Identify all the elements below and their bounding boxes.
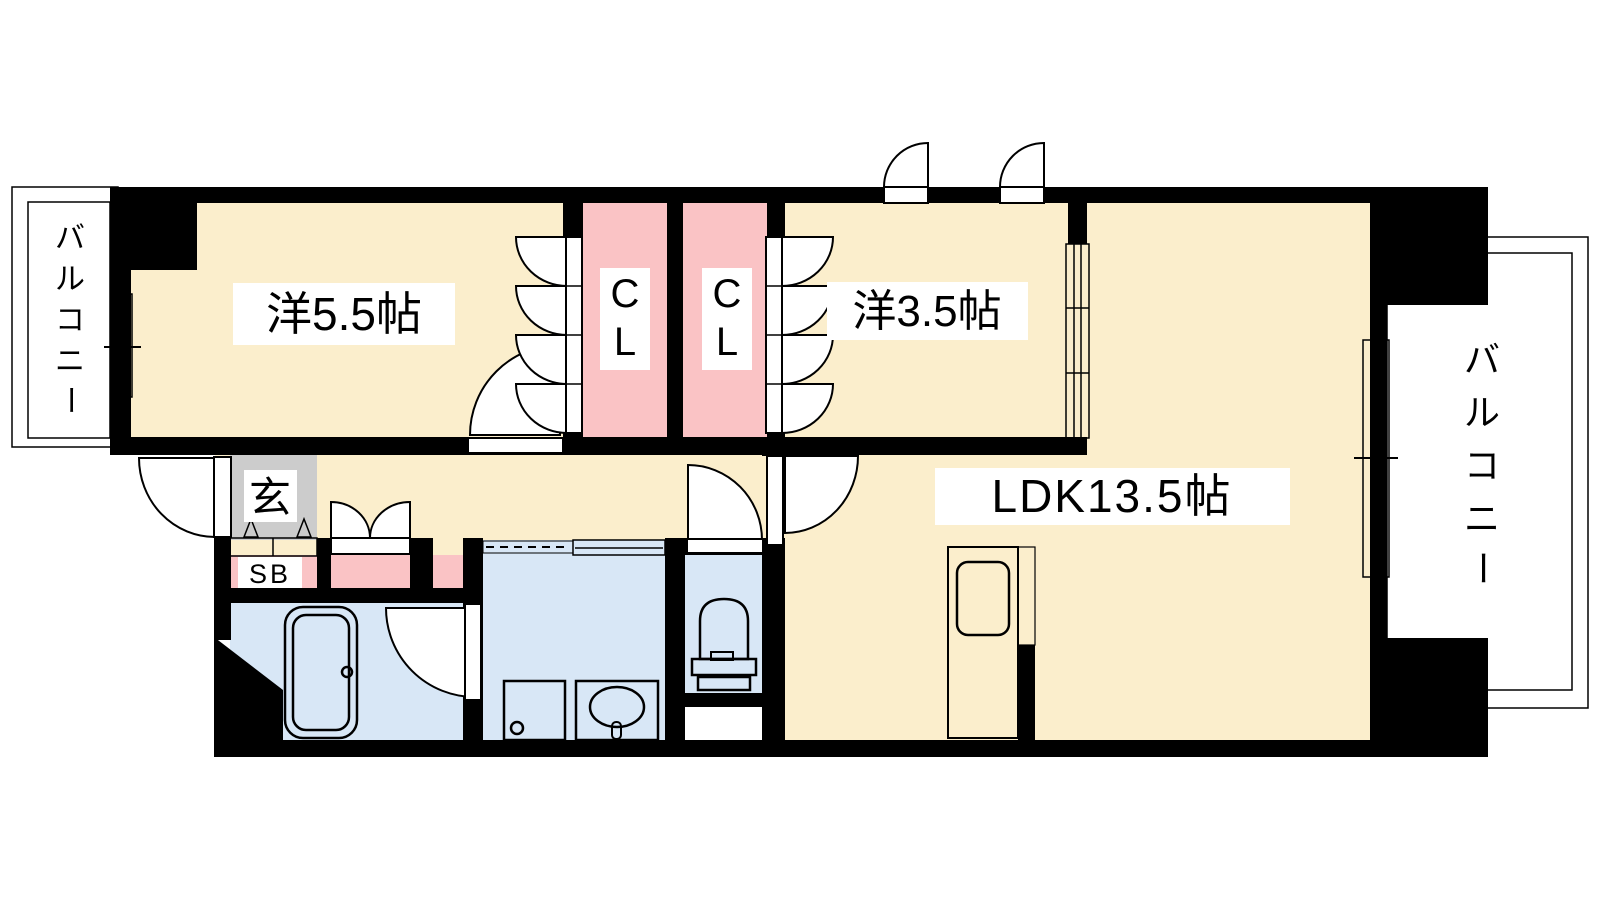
svg-text:ー: ー (53, 385, 86, 415)
bedroom2-label: 洋3.5帖 (852, 287, 1001, 336)
svg-text:ル: ル (1464, 392, 1500, 433)
closet-left-label-l: L (614, 320, 636, 364)
wall-closet-right-stub-top (767, 203, 785, 237)
wall-corner-top-right (1370, 187, 1488, 305)
wall-toilet-bottom (665, 693, 785, 707)
hall-storage-strip-2 (433, 555, 463, 588)
bedroom1-door-leaf (468, 438, 563, 453)
svg-text:バ: バ (55, 222, 85, 255)
svg-text:バ: バ (1464, 339, 1500, 380)
wall-partition-stub (1068, 203, 1087, 244)
top-door-1-leaf (884, 187, 928, 203)
wall-bathroom-top (215, 588, 463, 603)
svg-text:コ: コ (55, 304, 85, 337)
floor-plan-page: バ ル コ ニ ー (0, 0, 1600, 900)
balcony-left-label: バ ル コ ニ ー (53, 222, 86, 415)
wall-entrance-side (214, 537, 231, 640)
closet-left-label-c: C (611, 272, 640, 316)
hall-storage-threshold (331, 538, 410, 554)
ldk-label: LDK13.5帖 (991, 470, 1232, 522)
svg-text:コ: コ (1464, 445, 1500, 486)
wall-bottom (214, 740, 1488, 757)
hall-storage-strip (331, 555, 410, 588)
shoe-box-label: SB (249, 559, 291, 589)
ldk-door-leaf (767, 456, 783, 545)
bathroom-door-leaf (465, 604, 481, 700)
entrance-label: 玄 (249, 474, 291, 521)
closet-right-label-l: L (716, 320, 738, 364)
wall-corner-bottom-right (1370, 638, 1488, 757)
svg-text:ー: ー (1462, 550, 1503, 586)
bedroom1-label: 洋5.5帖 (266, 288, 422, 340)
wall-mid-horizontal (110, 437, 1087, 455)
wall-closet-left-stub-top (563, 203, 583, 237)
entrance-door-leaf (214, 457, 231, 537)
wall-top (110, 187, 1370, 203)
wall-ldk-door-bottom (762, 545, 785, 757)
wall-toilet-left (665, 538, 685, 740)
closet-right-bifold (766, 237, 833, 433)
wall-ldk-door-top (762, 437, 785, 456)
svg-text:ニ: ニ (1464, 498, 1500, 539)
toilet-door-leaf (687, 539, 763, 553)
pipe-space (685, 707, 762, 740)
closet-left-bifold (516, 237, 582, 433)
floor-plan-drawing: バ ル コ ニ ー (0, 0, 1600, 900)
svg-text:ニ: ニ (55, 345, 85, 378)
toilet-floor (685, 555, 762, 693)
svg-text:ル: ル (55, 263, 85, 296)
washroom-floor (483, 540, 665, 740)
wall-between-closets (667, 203, 683, 437)
top-door-2-leaf (1000, 187, 1044, 203)
wall-left (110, 187, 131, 455)
closet-right-label-c: C (713, 272, 742, 316)
wall-kitchen-stub (1018, 645, 1035, 740)
